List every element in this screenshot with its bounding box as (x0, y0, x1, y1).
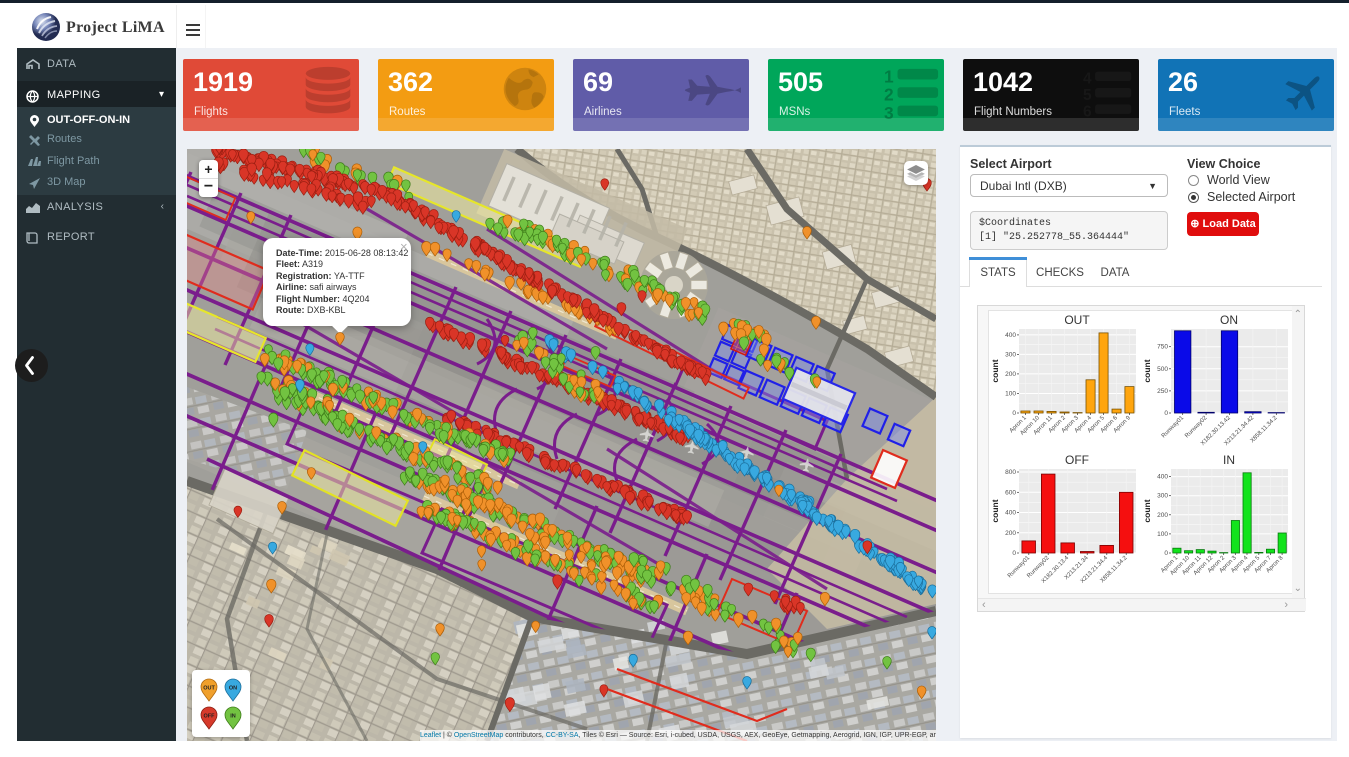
svg-text:OUT: OUT (1064, 313, 1090, 327)
svg-text:Runway02: Runway02 (1184, 415, 1209, 440)
svg-text:400: 400 (1157, 474, 1168, 481)
svg-text:OFF: OFF (204, 714, 216, 720)
svg-text:250: 250 (1157, 388, 1168, 395)
svg-text:6: 6 (1083, 103, 1092, 120)
svg-text:IN: IN (230, 714, 236, 720)
svg-text:600: 600 (1005, 489, 1016, 496)
svg-text:OUT: OUT (203, 686, 215, 692)
svg-text:200: 200 (1157, 512, 1168, 519)
svg-text:2: 2 (884, 85, 894, 105)
svg-text:ON: ON (229, 686, 237, 692)
svg-text:100: 100 (1005, 391, 1016, 398)
svg-text:300: 300 (1157, 493, 1168, 500)
svg-text:400: 400 (1005, 510, 1016, 517)
svg-text:500: 500 (1157, 366, 1168, 373)
svg-text:count: count (990, 499, 1000, 522)
svg-text:200: 200 (1005, 371, 1016, 378)
svg-text:0: 0 (1012, 550, 1016, 557)
svg-text:4: 4 (1083, 71, 1092, 88)
svg-text:count: count (990, 359, 1000, 382)
svg-text:OFF: OFF (1065, 453, 1089, 467)
svg-text:400: 400 (1005, 332, 1016, 339)
svg-text:0: 0 (1164, 550, 1168, 557)
svg-text:100: 100 (1157, 531, 1168, 538)
svg-text:IN: IN (1223, 453, 1235, 467)
svg-text:count: count (1142, 359, 1152, 382)
svg-text:200: 200 (1005, 530, 1016, 537)
svg-text:ON: ON (1220, 313, 1238, 327)
svg-text:750: 750 (1157, 344, 1168, 351)
svg-text:0: 0 (1012, 410, 1016, 417)
svg-text:0: 0 (1164, 410, 1168, 417)
svg-text:Runway01: Runway01 (1161, 415, 1186, 440)
svg-text:1: 1 (884, 66, 894, 86)
svg-text:300: 300 (1005, 351, 1016, 358)
svg-text:5: 5 (1083, 87, 1092, 104)
svg-text:3: 3 (884, 103, 894, 123)
svg-text:800: 800 (1005, 469, 1016, 476)
svg-text:count: count (1142, 499, 1152, 522)
